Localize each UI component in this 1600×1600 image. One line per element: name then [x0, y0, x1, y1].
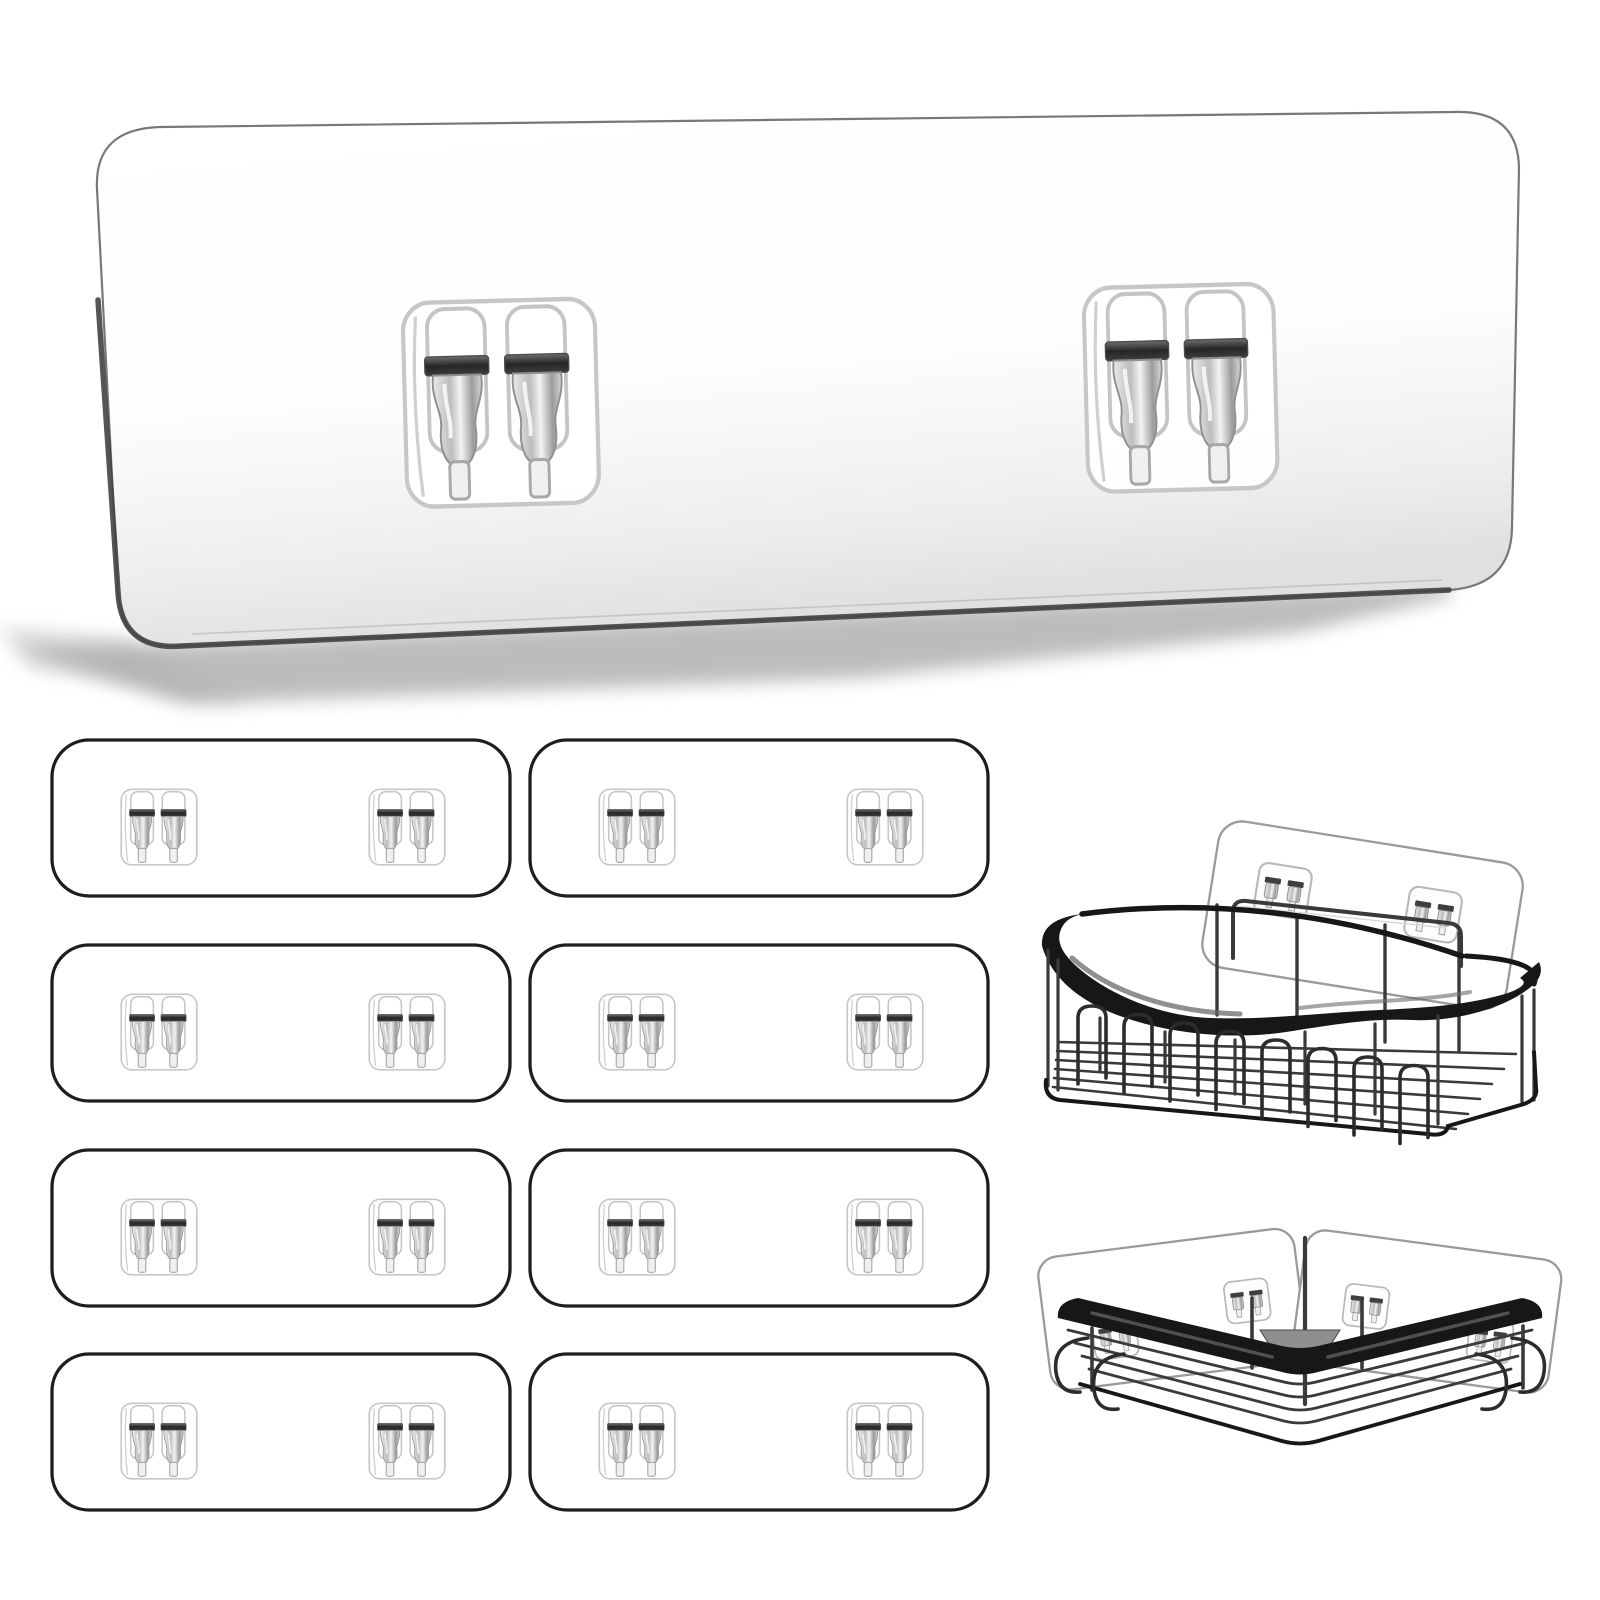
small-adhesive-panel: [52, 740, 510, 896]
large-panel-sheet: [97, 112, 1519, 647]
small-adhesive-panel: [530, 1354, 988, 1510]
corner-mini-pad: [1342, 1283, 1390, 1330]
wire-shelf-caddy: [1042, 818, 1541, 1144]
adhesive-hook-pad-left: [402, 298, 599, 507]
small-adhesive-panel: [530, 945, 988, 1101]
small-adhesive-panel: [530, 1150, 988, 1306]
adhesive-hook-pad-right: [1083, 283, 1278, 492]
small-adhesive-panel: [52, 945, 510, 1101]
product-image: Transparent adhesive replacement wall pa…: [0, 0, 1600, 1600]
corner-mini-pad: [1223, 1278, 1271, 1325]
small-adhesive-panel: [530, 740, 988, 896]
large-adhesive-panel: [0, 112, 1519, 704]
small-adhesive-panel: [52, 1150, 510, 1306]
corner-caddy: [1036, 1227, 1564, 1444]
small-adhesive-panel: [52, 1354, 510, 1510]
small-panel-grid: [52, 740, 988, 1510]
caddy-mini-pad: [1403, 886, 1463, 944]
corner-bottom-frame: [1080, 1384, 1520, 1444]
caddy-hanging-hook: [1262, 1040, 1290, 1118]
caddy-hanging-hook: [1354, 1057, 1382, 1135]
